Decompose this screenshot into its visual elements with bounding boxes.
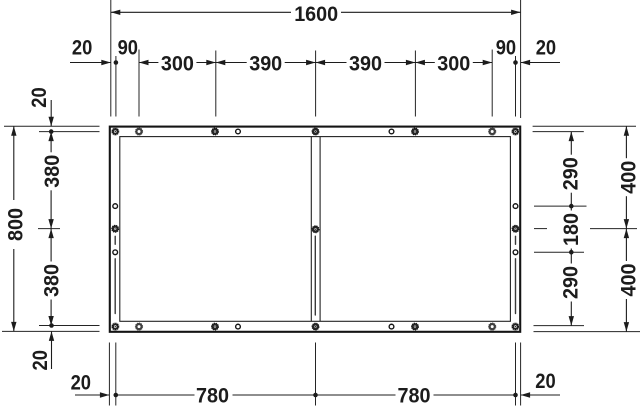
- svg-text:400: 400: [616, 161, 640, 194]
- svg-text:380: 380: [40, 264, 64, 297]
- svg-text:20: 20: [71, 370, 91, 394]
- svg-text:20: 20: [27, 87, 51, 107]
- svg-text:400: 400: [616, 263, 640, 296]
- svg-text:90: 90: [496, 35, 516, 59]
- svg-text:780: 780: [398, 383, 431, 407]
- svg-text:290: 290: [558, 157, 582, 190]
- svg-text:390: 390: [249, 51, 282, 75]
- svg-text:1600: 1600: [294, 2, 338, 26]
- svg-text:180: 180: [559, 213, 583, 246]
- svg-text:300: 300: [437, 51, 470, 75]
- svg-text:20: 20: [535, 369, 555, 393]
- svg-text:290: 290: [558, 266, 582, 299]
- svg-text:90: 90: [118, 35, 138, 59]
- svg-text:20: 20: [536, 35, 556, 59]
- svg-text:390: 390: [349, 51, 382, 75]
- svg-text:780: 780: [196, 383, 229, 407]
- svg-text:800: 800: [4, 208, 28, 241]
- svg-text:300: 300: [161, 51, 194, 75]
- svg-text:20: 20: [72, 36, 92, 60]
- svg-text:20: 20: [28, 350, 52, 370]
- svg-text:380: 380: [40, 155, 64, 188]
